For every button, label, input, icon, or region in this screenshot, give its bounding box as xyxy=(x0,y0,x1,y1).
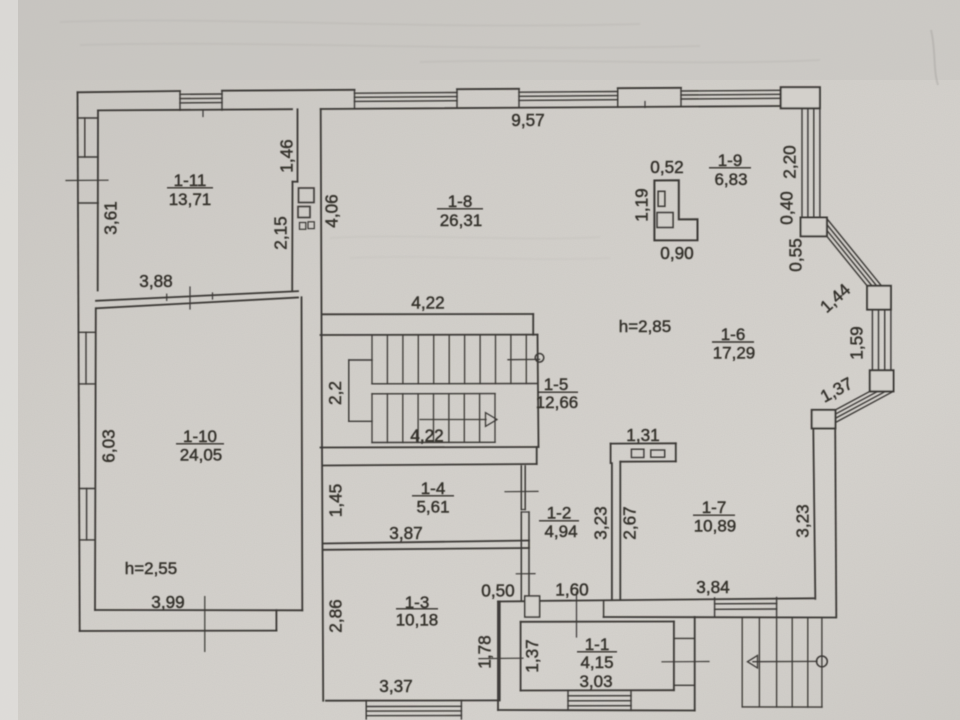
svg-text:3,37: 3,37 xyxy=(379,676,412,696)
svg-text:4,22: 4,22 xyxy=(411,293,444,313)
svg-text:24,05: 24,05 xyxy=(180,446,223,465)
svg-text:1-7: 1-7 xyxy=(702,498,727,517)
svg-text:h=2,85: h=2,85 xyxy=(619,317,671,336)
svg-text:0,50: 0,50 xyxy=(481,581,514,601)
svg-text:6,83: 6,83 xyxy=(714,170,747,189)
svg-text:3,88: 3,88 xyxy=(139,271,172,291)
svg-text:1,31: 1,31 xyxy=(626,425,659,445)
svg-text:3,84: 3,84 xyxy=(696,577,730,597)
svg-text:1,60: 1,60 xyxy=(555,580,588,600)
svg-text:3,99: 3,99 xyxy=(151,592,184,612)
svg-text:0,52: 0,52 xyxy=(650,157,683,177)
svg-text:1-5: 1-5 xyxy=(544,375,569,394)
svg-text:13,71: 13,71 xyxy=(169,190,212,209)
svg-text:4,15: 4,15 xyxy=(580,653,613,672)
svg-text:0,55: 0,55 xyxy=(786,238,806,271)
svg-text:1,78: 1,78 xyxy=(475,635,495,668)
svg-text:2,15: 2,15 xyxy=(271,216,291,249)
svg-text:2,20: 2,20 xyxy=(780,145,800,178)
svg-text:1-6: 1-6 xyxy=(721,325,746,344)
svg-text:1,37: 1,37 xyxy=(522,639,542,672)
svg-text:1,19: 1,19 xyxy=(632,188,652,221)
svg-text:10,89: 10,89 xyxy=(694,517,737,536)
svg-text:1-2: 1-2 xyxy=(547,504,572,523)
svg-text:2,67: 2,67 xyxy=(620,506,640,539)
svg-text:5,61: 5,61 xyxy=(416,498,449,517)
svg-text:4,22: 4,22 xyxy=(410,426,443,446)
svg-text:12,66: 12,66 xyxy=(536,393,579,412)
svg-text:1,59: 1,59 xyxy=(847,326,867,359)
svg-text:1,46: 1,46 xyxy=(277,139,297,172)
svg-text:9,57: 9,57 xyxy=(511,110,544,130)
svg-text:3,87: 3,87 xyxy=(389,523,422,543)
svg-text:3,23: 3,23 xyxy=(793,504,813,537)
svg-text:10,18: 10,18 xyxy=(396,611,439,630)
svg-text:26,31: 26,31 xyxy=(440,211,483,230)
svg-text:1,45: 1,45 xyxy=(326,484,346,517)
svg-text:17,29: 17,29 xyxy=(713,344,756,363)
svg-text:0,40: 0,40 xyxy=(777,191,797,224)
svg-text:4,06: 4,06 xyxy=(322,194,342,227)
svg-text:h=2,55: h=2,55 xyxy=(125,559,177,578)
svg-text:2,86: 2,86 xyxy=(326,599,346,632)
svg-text:0,90: 0,90 xyxy=(660,243,693,263)
svg-text:3,61: 3,61 xyxy=(101,201,121,234)
svg-text:4,94: 4,94 xyxy=(544,522,577,541)
svg-text:6,03: 6,03 xyxy=(99,429,119,462)
svg-text:3,23: 3,23 xyxy=(591,506,611,539)
svg-text:3,03: 3,03 xyxy=(579,672,612,691)
svg-text:2,2: 2,2 xyxy=(325,381,345,405)
